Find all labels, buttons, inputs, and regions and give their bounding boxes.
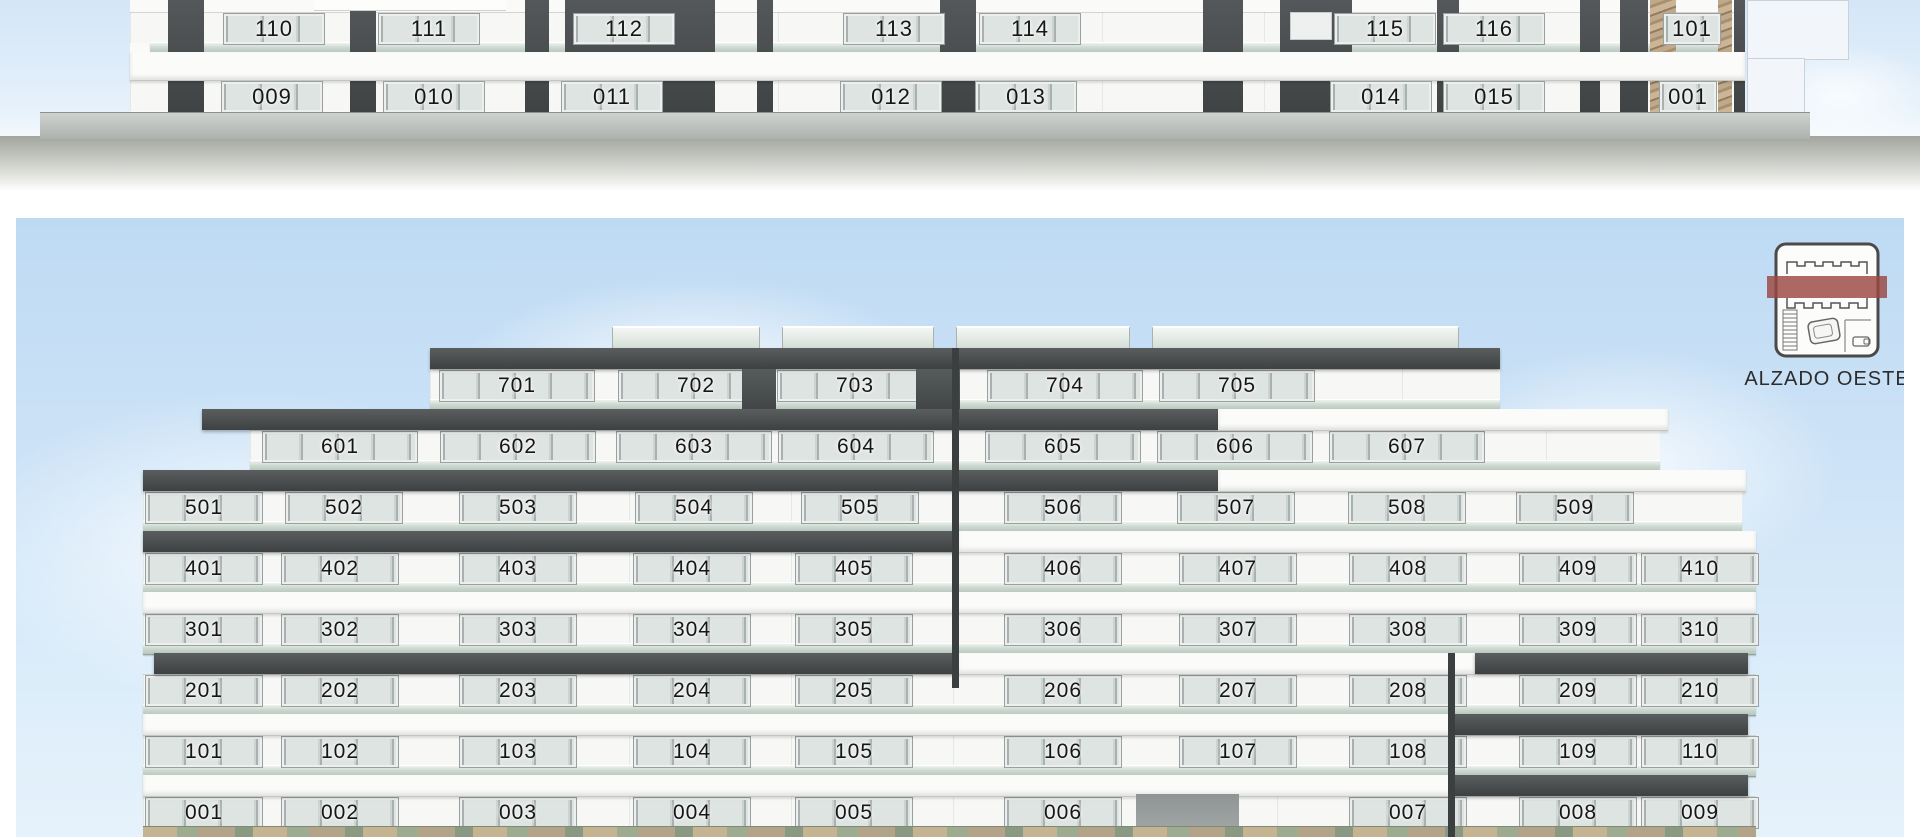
unit-window: 005 (796, 798, 912, 828)
unit-window: 009 (222, 82, 322, 112)
unit-window: 604 (779, 432, 933, 462)
unit-number: 108 (1389, 740, 1427, 764)
unit-window: 306 (1005, 615, 1121, 645)
ground-platform (40, 112, 1810, 139)
unit-number: 012 (871, 84, 911, 110)
unit-window: 508 (1349, 493, 1465, 523)
slab-band (143, 714, 1451, 736)
unit-number: 014 (1361, 84, 1401, 110)
unit-window: 113 (844, 14, 944, 44)
unit-window: 607 (1330, 432, 1484, 462)
unit-number: 703 (836, 374, 874, 398)
unit-number: 310 (1681, 618, 1719, 642)
unit-window: 302 (282, 615, 398, 645)
roof-band (1451, 714, 1748, 735)
unit-number: 101 (1672, 16, 1712, 42)
unit-window: 303 (460, 615, 576, 645)
unit-number: 105 (835, 740, 873, 764)
unit-window: 001 (146, 798, 262, 828)
unit-window: 605 (986, 432, 1140, 462)
unit-number: 403 (499, 557, 537, 581)
unit-window: 008 (1520, 798, 1636, 828)
unit-number: 509 (1556, 496, 1594, 520)
unit-number: 111 (411, 16, 447, 42)
unit-number: 006 (1044, 801, 1082, 825)
unit-window: 307 (1180, 615, 1296, 645)
unit-number: 003 (499, 801, 537, 825)
unit-number: 008 (1559, 801, 1597, 825)
unit-number: 409 (1559, 557, 1597, 581)
unit-number: 103 (499, 740, 537, 764)
elevation-marker-band (1767, 276, 1887, 298)
unit-window: 209 (1520, 676, 1636, 706)
unit-window: 602 (441, 432, 595, 462)
unit-window: 011 (562, 82, 662, 112)
unit-number: 009 (1681, 801, 1719, 825)
unit-number: 007 (1389, 801, 1427, 825)
unit-window: 704 (988, 371, 1142, 401)
unit-number: 306 (1044, 618, 1082, 642)
unit-window: 010 (384, 82, 484, 112)
unit-number: 015 (1474, 84, 1514, 110)
unit-window: 105 (796, 737, 912, 767)
planter-strip (143, 826, 1756, 837)
slab-band (958, 531, 1756, 553)
unit-window: 116 (1444, 14, 1544, 44)
unit-number: 208 (1389, 679, 1427, 703)
unit-number: 005 (835, 801, 873, 825)
unit-number: 607 (1388, 435, 1426, 459)
unit-window: 502 (286, 493, 402, 523)
unit-window: 401 (146, 554, 262, 584)
unit-window: 204 (634, 676, 750, 706)
unit-window: 014 (1331, 82, 1431, 112)
unit-number: 408 (1389, 557, 1427, 581)
unit-window: 102 (282, 737, 398, 767)
unit-number: 207 (1219, 679, 1257, 703)
unit-number: 210 (1681, 679, 1719, 703)
unit-number: 011 (593, 84, 631, 110)
unit-number: 106 (1044, 740, 1082, 764)
unit-number: 507 (1217, 496, 1255, 520)
unit-window: 101 (146, 737, 262, 767)
unit-number: 606 (1216, 435, 1254, 459)
unit-number: 001 (185, 801, 223, 825)
unit-window: 012 (841, 82, 941, 112)
unit-number: 603 (675, 435, 713, 459)
key-plan: ALZADO OESTE (1742, 240, 1904, 391)
slab-band (958, 653, 1475, 675)
unit-window: 505 (802, 493, 918, 523)
facade-pier (742, 369, 776, 409)
unit-number: 010 (414, 84, 454, 110)
unit-window: 408 (1350, 554, 1466, 584)
unit-window: 509 (1517, 493, 1633, 523)
unit-number: 013 (1006, 84, 1046, 110)
unit-number: 305 (835, 618, 873, 642)
slab-band (1218, 409, 1668, 431)
unit-number: 601 (321, 435, 359, 459)
unit-window: 504 (636, 493, 752, 523)
unit-window: 103 (460, 737, 576, 767)
unit-number: 401 (185, 557, 223, 581)
unit-number: 115 (1366, 16, 1404, 42)
unit-window: 407 (1180, 554, 1296, 584)
unit-number: 501 (185, 496, 223, 520)
unit-number: 102 (321, 740, 359, 764)
unit-window: 308 (1350, 615, 1466, 645)
unit-number: 503 (499, 496, 537, 520)
unit-number: 705 (1218, 374, 1256, 398)
background-building-outline (1747, 0, 1849, 60)
unit-number: 009 (252, 84, 292, 110)
unit-number: 205 (835, 679, 873, 703)
unit-number: 110 (1682, 740, 1718, 764)
unit-window: 207 (1180, 676, 1296, 706)
unit-window: 503 (460, 493, 576, 523)
unit-window: 603 (617, 432, 771, 462)
slab-band (1218, 470, 1746, 492)
unit-number: 002 (321, 801, 359, 825)
unit-window: 601 (263, 432, 417, 462)
facade-window-inset (1290, 12, 1332, 40)
roof-band (1451, 775, 1748, 796)
unit-window: 501 (146, 493, 262, 523)
unit-number: 206 (1044, 679, 1082, 703)
unit-number: 404 (673, 557, 711, 581)
unit-number: 505 (841, 496, 879, 520)
unit-window: 112 (574, 14, 674, 44)
unit-window: 309 (1520, 615, 1636, 645)
unit-number: 704 (1046, 374, 1084, 398)
unit-window: 404 (634, 554, 750, 584)
unit-number: 209 (1559, 679, 1597, 703)
unit-number: 309 (1559, 618, 1597, 642)
unit-number: 304 (673, 618, 711, 642)
unit-number: 113 (875, 16, 913, 42)
unit-window: 101 (1664, 14, 1720, 44)
unit-number: 104 (673, 740, 711, 764)
roof-slab (314, 0, 506, 11)
roof-band (202, 409, 1218, 430)
west-elevation-panel: 7017027037047056016026036046056066075015… (16, 218, 1904, 837)
unit-window: 206 (1005, 676, 1121, 706)
roof-band (430, 348, 1500, 369)
unit-number: 204 (673, 679, 711, 703)
terrain (0, 136, 1920, 194)
unit-window: 701 (440, 371, 594, 401)
unit-window: 305 (796, 615, 912, 645)
roof-band (143, 531, 958, 552)
top-building-facade: 1101111121131141151161010090100110120130… (130, 0, 1745, 114)
unit-number: 101 (185, 740, 223, 764)
unit-number: 504 (675, 496, 713, 520)
unit-window: 705 (1160, 371, 1314, 401)
unit-number: 004 (673, 801, 711, 825)
unit-number: 114 (1011, 16, 1049, 42)
unit-number: 702 (677, 374, 715, 398)
unit-number: 605 (1044, 435, 1082, 459)
unit-number: 405 (835, 557, 873, 581)
unit-window: 104 (634, 737, 750, 767)
unit-number: 410 (1681, 557, 1719, 581)
unit-number: 502 (325, 496, 363, 520)
unit-window: 606 (1158, 432, 1312, 462)
unit-window: 304 (634, 615, 750, 645)
roof-band (154, 653, 958, 674)
unit-window: 210 (1642, 676, 1758, 706)
unit-window: 001 (1660, 82, 1716, 112)
room-shape (1807, 318, 1840, 345)
unit-number: 302 (321, 618, 359, 642)
unit-number: 701 (498, 374, 536, 398)
unit-number: 116 (1475, 16, 1513, 42)
unit-number: 110 (255, 16, 293, 42)
unit-window: 409 (1520, 554, 1636, 584)
unit-window: 402 (282, 554, 398, 584)
unit-window: 106 (1005, 737, 1121, 767)
unit-window: 107 (1180, 737, 1296, 767)
unit-number: 406 (1044, 557, 1082, 581)
key-plan-icon (1767, 240, 1887, 362)
unit-window: 202 (282, 676, 398, 706)
unit-number: 301 (185, 618, 223, 642)
elevation-sheet: 1101111121131141151161010090100110120130… (0, 0, 1920, 837)
expansion-joint-right (1448, 653, 1455, 837)
unit-window: 115 (1335, 14, 1435, 44)
unit-number: 202 (321, 679, 359, 703)
roof-band (1475, 653, 1748, 674)
unit-window: 006 (1005, 798, 1121, 828)
unit-number: 109 (1559, 740, 1597, 764)
unit-number: 112 (605, 16, 643, 42)
unit-window: 009 (1642, 798, 1758, 828)
unit-window: 203 (460, 676, 576, 706)
unit-window: 013 (976, 82, 1076, 112)
unit-window: 003 (460, 798, 576, 828)
unit-window: 002 (282, 798, 398, 828)
unit-number: 402 (321, 557, 359, 581)
unit-window: 110 (1642, 737, 1758, 767)
unit-window: 015 (1444, 82, 1544, 112)
unit-window: 403 (460, 554, 576, 584)
unit-number: 506 (1044, 496, 1082, 520)
unit-number: 201 (185, 679, 223, 703)
unit-number: 407 (1219, 557, 1257, 581)
unit-number: 308 (1389, 618, 1427, 642)
unit-window: 110 (224, 14, 324, 44)
balcony-slab (130, 52, 1745, 81)
top-elevation-panel: 1101111121131141151161010090100110120130… (0, 0, 1920, 218)
unit-window: 703 (778, 371, 932, 401)
unit-window: 301 (146, 615, 262, 645)
unit-number: 508 (1388, 496, 1426, 520)
unit-window: 405 (796, 554, 912, 584)
unit-window: 507 (1178, 493, 1294, 523)
unit-window: 111 (379, 14, 479, 44)
unit-number: 203 (499, 679, 537, 703)
unit-window: 201 (146, 676, 262, 706)
unit-window: 506 (1005, 493, 1121, 523)
unit-window: 114 (980, 14, 1080, 44)
roof-band (143, 470, 1218, 491)
west-building-facade: 7017027037047056016026036046056066075015… (16, 218, 1904, 837)
slab-band (143, 592, 1756, 614)
unit-number: 307 (1219, 618, 1257, 642)
unit-window: 310 (1642, 615, 1758, 645)
unit-number: 107 (1219, 740, 1257, 764)
unit-window: 410 (1642, 554, 1758, 584)
unit-window: 205 (796, 676, 912, 706)
unit-number: 604 (837, 435, 875, 459)
unit-number: 602 (499, 435, 537, 459)
expansion-joint-center (952, 348, 959, 688)
unit-window: 109 (1520, 737, 1636, 767)
unit-window: 406 (1005, 554, 1121, 584)
unit-window: 004 (634, 798, 750, 828)
elevation-label: ALZADO OESTE (1744, 368, 1904, 391)
slab-band (143, 775, 1451, 797)
unit-number: 001 (1668, 84, 1708, 110)
unit-number: 303 (499, 618, 537, 642)
